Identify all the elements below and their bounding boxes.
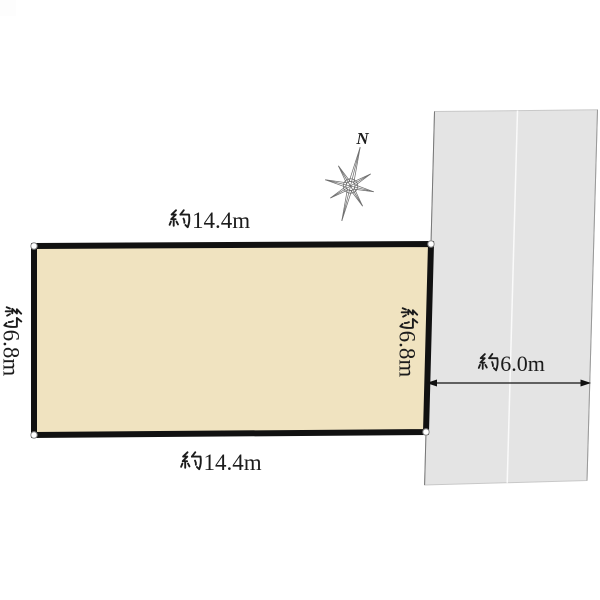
svg-text:6.8m: 6.8m xyxy=(0,330,24,377)
svg-text:14.4m: 14.4m xyxy=(192,208,250,233)
svg-text:6.8m: 6.8m xyxy=(395,331,420,378)
svg-text:6.0m: 6.0m xyxy=(500,351,545,376)
svg-text:14.4m: 14.4m xyxy=(204,450,262,475)
svg-text:N: N xyxy=(355,129,369,148)
